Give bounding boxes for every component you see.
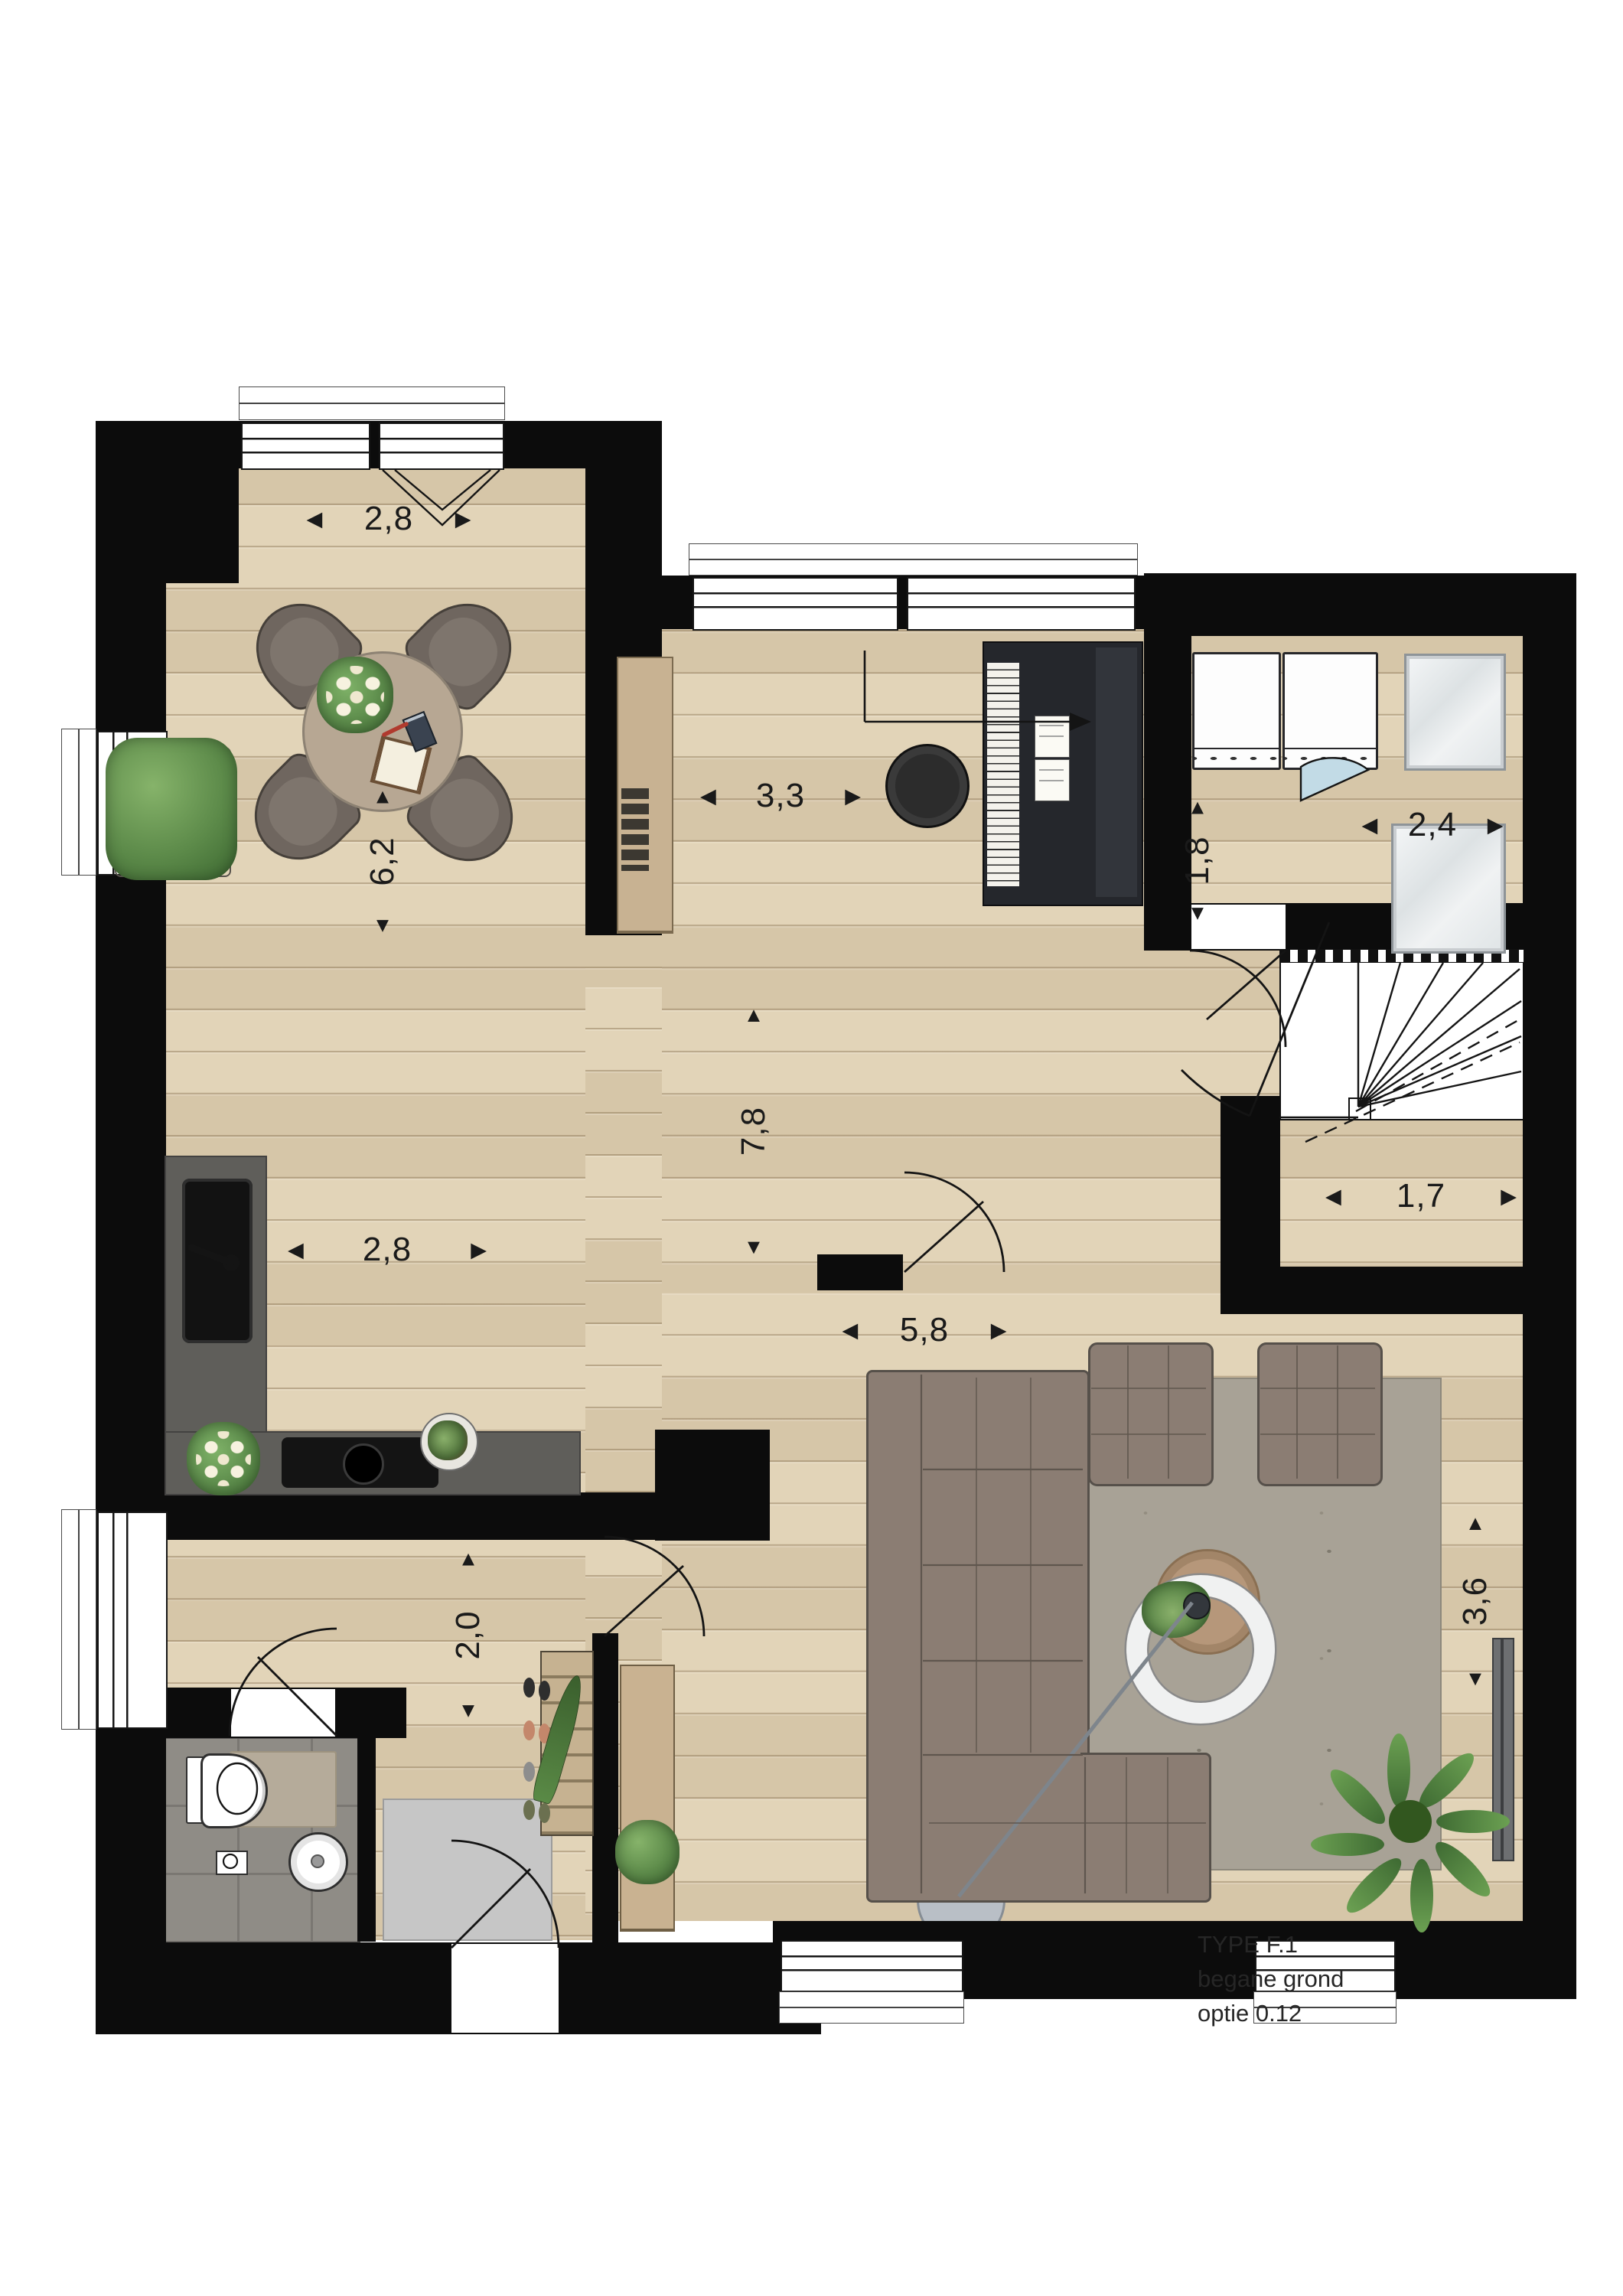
piano-stool bbox=[885, 744, 970, 828]
arrow-left-icon: ◀ bbox=[842, 1320, 859, 1341]
sill-living-south-1 bbox=[779, 1991, 964, 2024]
doorway-front bbox=[451, 1944, 559, 2033]
arrow-right-icon: ▶ bbox=[455, 509, 471, 530]
plant-leaf bbox=[1410, 1859, 1433, 1932]
window-entry-west bbox=[97, 1512, 168, 1729]
dimension-label: 7,8 bbox=[735, 1107, 773, 1156]
piano-keys bbox=[987, 663, 1019, 886]
arrow-up-icon: ▲ bbox=[744, 1005, 764, 1026]
sideboard bbox=[620, 1665, 675, 1932]
plant-leaf bbox=[1429, 1835, 1497, 1903]
cabinet-books bbox=[621, 788, 649, 871]
window-hall-2 bbox=[907, 577, 1136, 631]
corner-sofa-chaise bbox=[1080, 1753, 1211, 1903]
dimension-utility-width: ◀2,4▶ bbox=[1362, 806, 1504, 844]
arrow-right-icon: ▶ bbox=[1501, 1186, 1517, 1207]
armchair bbox=[1088, 1342, 1214, 1486]
sill-hall-north bbox=[689, 543, 1138, 576]
dimension-dining-width: ◀2,8▶ bbox=[307, 500, 471, 538]
dimension-label: 1,8 bbox=[1178, 836, 1217, 885]
window-hall-1 bbox=[693, 577, 898, 631]
wall-corridor-south bbox=[1221, 1267, 1576, 1314]
shoe-pair bbox=[523, 1800, 535, 1820]
arrow-up-icon: ▲ bbox=[1188, 797, 1208, 818]
title-block: TYPE F.1 begane grond optie 0.12 bbox=[1198, 1927, 1344, 2030]
window-plant bbox=[106, 738, 237, 880]
kitchen-blossoms bbox=[196, 1431, 251, 1486]
washing-machine bbox=[1192, 652, 1281, 770]
dimension-label: 2,8 bbox=[363, 1231, 412, 1269]
dimension-label: 3,3 bbox=[756, 777, 805, 815]
plant-leaf bbox=[1311, 1833, 1384, 1856]
armchair bbox=[1257, 1342, 1383, 1486]
arrow-left-icon: ◀ bbox=[307, 509, 323, 530]
flower-blossoms bbox=[326, 666, 384, 724]
arrow-left-icon: ◀ bbox=[1362, 815, 1378, 836]
piano-lid bbox=[1096, 647, 1137, 897]
arrow-right-icon: ▶ bbox=[845, 786, 861, 807]
doorway-toilet bbox=[231, 1689, 335, 1737]
washing-machine bbox=[1282, 652, 1378, 770]
staircase-floor bbox=[1279, 949, 1526, 1120]
dimension-label: 2,8 bbox=[364, 500, 413, 538]
sideboard-plant bbox=[615, 1820, 680, 1884]
cooktop-burner bbox=[343, 1443, 384, 1485]
dimension-utility-depth: ▲1,8▼ bbox=[1173, 797, 1222, 924]
arrow-right-icon: ▶ bbox=[991, 1320, 1007, 1341]
plant-leaf bbox=[1387, 1733, 1410, 1807]
dimension-hall-width: ◀3,3▶ bbox=[700, 777, 861, 815]
arrow-up-icon: ▲ bbox=[373, 787, 393, 807]
arrow-down-icon: ▼ bbox=[744, 1237, 764, 1257]
dimension-living-width: ◀5,8▶ bbox=[842, 1311, 1007, 1349]
doormat bbox=[383, 1799, 552, 1941]
window-dining-2 bbox=[379, 422, 504, 470]
stair-newel bbox=[1348, 1097, 1371, 1120]
dimension-label: 2,4 bbox=[1408, 806, 1457, 844]
arrow-down-icon: ▼ bbox=[458, 1701, 479, 1721]
floorplan-canvas: ◀2,8▶◀3,3▶▲6,2▼▲7,8▼◀2,8▶▲2,0▼◀5,8▶◀1,7▶… bbox=[0, 0, 1623, 2296]
wall-toilet-east bbox=[357, 1688, 376, 1942]
plant-leaf bbox=[1436, 1810, 1510, 1833]
arrow-up-icon: ▲ bbox=[458, 1549, 479, 1570]
toilet-paper-holder bbox=[216, 1851, 248, 1875]
plan-type-label: TYPE F.1 bbox=[1198, 1927, 1344, 1962]
arrow-left-icon: ◀ bbox=[1325, 1186, 1341, 1207]
wall-hall-living-stub bbox=[817, 1254, 903, 1290]
dimension-label: 6,2 bbox=[363, 837, 402, 885]
shoe-pair bbox=[523, 1762, 535, 1782]
dimension-dining-depth: ▲6,2▼ bbox=[358, 787, 407, 936]
kitchen-sink bbox=[182, 1179, 253, 1343]
arrow-down-icon: ▼ bbox=[1465, 1668, 1486, 1689]
sill-dining-west bbox=[61, 729, 96, 876]
window-living-south-1 bbox=[781, 1940, 963, 1992]
dimension-living-depth: ▲3,6▼ bbox=[1451, 1513, 1500, 1689]
wall-west bbox=[96, 421, 166, 2034]
sheet-music bbox=[1035, 759, 1070, 801]
dimension-kitchen-width: ◀2,8▶ bbox=[288, 1231, 487, 1269]
dimension-label: 1,7 bbox=[1396, 1177, 1445, 1215]
salad-greens bbox=[428, 1420, 468, 1460]
arrow-right-icon: ▶ bbox=[471, 1240, 487, 1261]
plant-core bbox=[1389, 1800, 1432, 1843]
large-plant bbox=[1334, 1745, 1487, 1898]
wall-entry-living bbox=[592, 1633, 618, 1942]
sill-dining-north bbox=[239, 386, 505, 420]
wall-kitchen-south bbox=[96, 1492, 660, 1540]
arrow-down-icon: ▼ bbox=[1188, 903, 1208, 924]
arrow-left-icon: ◀ bbox=[700, 786, 716, 807]
plan-floor-label: begane grond bbox=[1198, 1962, 1344, 1996]
sill-entry-west bbox=[61, 1509, 96, 1730]
plan-option-label: optie 0.12 bbox=[1198, 1996, 1344, 2030]
dimension-entry-depth: ▲2,0▼ bbox=[444, 1549, 493, 1721]
dimension-open-depth: ▲7,8▼ bbox=[729, 1005, 778, 1257]
dimension-corridor-width: ◀1,7▶ bbox=[1325, 1177, 1517, 1215]
arc-lamp-head bbox=[1183, 1592, 1211, 1619]
shoe-pair bbox=[523, 1720, 535, 1740]
arrow-left-icon: ◀ bbox=[288, 1240, 304, 1261]
sheet-music bbox=[1035, 716, 1070, 758]
wall-corridor-west bbox=[1221, 1096, 1280, 1267]
dimension-label: 5,8 bbox=[900, 1311, 949, 1349]
wall-utility-north bbox=[1144, 573, 1576, 636]
plant-leaf bbox=[1324, 1763, 1392, 1831]
dimension-label: 3,6 bbox=[1456, 1577, 1494, 1626]
glass-worktop-unit bbox=[1404, 654, 1506, 771]
basin-drain bbox=[311, 1854, 324, 1868]
shoe-pair bbox=[523, 1678, 535, 1698]
arrow-right-icon: ▶ bbox=[1488, 815, 1504, 836]
dimension-label: 2,0 bbox=[449, 1610, 487, 1659]
arrow-down-icon: ▼ bbox=[373, 915, 393, 936]
arrow-up-icon: ▲ bbox=[1465, 1513, 1486, 1534]
corner-sofa-main bbox=[866, 1370, 1090, 1903]
window-dining-1 bbox=[241, 422, 370, 470]
wall-kitchen-block bbox=[655, 1430, 770, 1541]
